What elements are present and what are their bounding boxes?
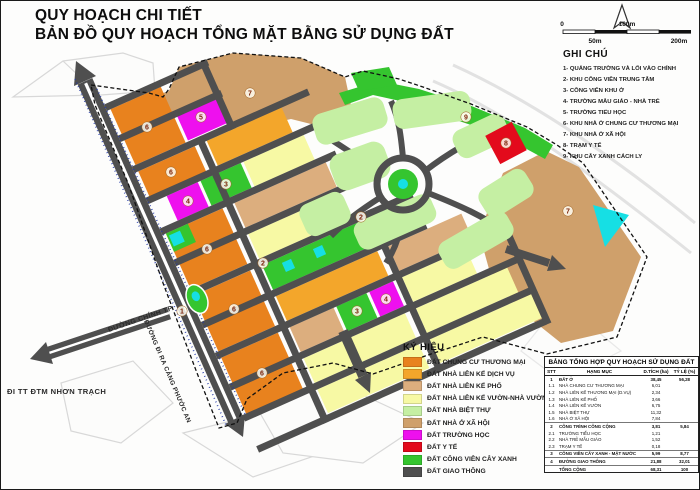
symbol-color-swatch	[403, 467, 422, 477]
symbol-label: ĐẤT GIAO THÔNG	[427, 468, 486, 475]
road-label: ĐI TT ĐTM NHƠN TRẠCH	[7, 387, 106, 396]
legend-note-item: 6- KHU NHÀ Ở CHUNG CƯ THƯƠNG MẠI	[563, 119, 699, 130]
symbol-label: ĐẤT NHÀ LIÊN KẾ DỊCH VỤ	[427, 371, 515, 378]
table-cell: 56,28	[671, 376, 698, 383]
symbol-label: ĐẤT NHÀ Ở XÃ HỘI	[427, 420, 490, 427]
table-cell	[671, 432, 698, 434]
symbol-legend-item: ĐẤT NHÀ LIÊN KẾ DỊCH VỤ	[403, 368, 543, 380]
table-row: 2.2NHÀ TRẺ MẪU GIÁO1,52	[545, 436, 698, 443]
table-row: 4ĐƯỜNG GIAO THÔNG21,8832,01	[545, 457, 698, 465]
symbol-legend-item: ĐẤT NHÀ Ở XÃ HỘI	[403, 417, 543, 429]
symbol-legend-item: ĐẤT NHÀ LIÊN KẾ VƯỜN-NHÀ VƯỜN	[403, 393, 543, 405]
block-number: 2	[261, 261, 265, 268]
block-number: 3	[355, 309, 359, 316]
landuse-summary-table: BẢNG TỔNG HỢP QUY HOẠCH SỬ DỤNG ĐẤT STTH…	[544, 356, 699, 473]
symbol-color-swatch	[403, 381, 422, 391]
symbol-color-swatch	[403, 406, 422, 416]
table-cell: NHÀ LIÊN KẾ PHỐ	[558, 396, 641, 403]
legend-note-item: 1- QUẢNG TRƯỜNG VÀ LỐI VÀO CHÍNH	[563, 64, 699, 75]
table-cell: 3	[545, 451, 558, 458]
table-cell: 2.2	[545, 436, 558, 443]
table-row: 2.1TRƯỜNG TIỂU HỌC1,21	[545, 430, 698, 437]
table-row: 1.2NHÀ LIÊN KẾ THƯƠNG MẠI (D.VỤ)2,34	[545, 389, 698, 396]
table-row: 3CÔNG VIÊN CÂY XANH - MẶT NƯỚC5,998,77	[545, 450, 698, 458]
symbol-color-swatch	[403, 442, 422, 452]
table-cell: 6,01	[641, 383, 671, 390]
table-cell: NHÀ LIÊN KẾ VƯỜN	[558, 402, 641, 409]
table-cell	[671, 418, 698, 420]
table-cell: 1.2	[545, 389, 558, 396]
table-row: 1.6NHÀ Ở XÃ HỘI7,84	[545, 416, 698, 423]
symbol-label: ĐẤT NHÀ LIÊN KẾ PHỐ	[427, 383, 502, 390]
table-cell: 5,99	[641, 451, 671, 458]
symbol-label: ĐẤT Y TẾ	[427, 444, 457, 451]
block-number: 6	[145, 125, 149, 132]
table-row: 1ĐẤT Ở38,4556,28	[545, 376, 698, 383]
legend-note-item: 4- TRƯỜNG MẪU GIÁO - NHÀ TRẺ	[563, 97, 699, 108]
table-cell: 1.4	[545, 402, 558, 409]
table-row: 2CÔNG TRÌNH CÔNG CỘNG3,815,84	[545, 422, 698, 430]
table-cell	[671, 411, 698, 413]
block-number: 6	[260, 371, 264, 378]
table-cell: 2.1	[545, 430, 558, 437]
symbols-list: ĐẤT CHUNG CƯ THƯƠNG MẠIĐẤT NHÀ LIÊN KẾ D…	[403, 356, 543, 478]
block-number: 2	[359, 215, 363, 222]
table-cell: 3,66	[641, 396, 671, 403]
table-cell: 100	[671, 466, 698, 473]
table-cell: 2,34	[641, 389, 671, 396]
table-cell: NHÀ CHUNG CƯ THƯƠNG MẠI	[558, 383, 641, 390]
legend-note-item: 8- TRẠM Y TẾ	[563, 141, 699, 152]
table-row: 2.3TRẠM Y TẾ0,18	[545, 443, 698, 450]
table-column-header: TỶ LỆ (%)	[671, 368, 698, 375]
symbol-color-swatch	[403, 357, 422, 367]
symbol-label: ĐẤT CÔNG VIÊN CÂY XANH	[427, 456, 517, 463]
symbols-heading: KÝ HIỆU	[403, 342, 543, 353]
table-header: STTHẠNG MỤCD.TÍCH (ha)TỶ LỆ (%)	[545, 368, 698, 376]
table-cell: 2.3	[545, 443, 558, 450]
table-column-header: STT	[545, 368, 558, 375]
table-cell	[671, 439, 698, 441]
table-cell: 38,45	[641, 376, 671, 383]
table-cell: 8,77	[671, 451, 698, 458]
block-number: 6	[232, 307, 236, 314]
table-cell: 1,52	[641, 436, 671, 443]
table-cell: 11,32	[641, 409, 671, 416]
table-cell: NHÀ Ở XÃ HỘI	[558, 416, 641, 423]
table-cell	[671, 392, 698, 394]
table-cell: 1,21	[641, 430, 671, 437]
table-cell: CÔNG VIÊN CÂY XANH - MẶT NƯỚC	[558, 451, 641, 458]
symbol-color-swatch	[403, 418, 422, 428]
table-cell: 32,01	[671, 458, 698, 465]
table-cell: ĐẤT Ở	[558, 376, 641, 383]
symbol-legend-item: ĐẤT GIAO THÔNG	[403, 466, 543, 478]
block-number: 6	[169, 170, 173, 177]
table-cell	[545, 468, 558, 470]
table-cell: 1.1	[545, 383, 558, 390]
table-cell: ĐƯỜNG GIAO THÔNG	[558, 458, 641, 465]
table-cell: 7,84	[641, 416, 671, 423]
scale-label: 0	[560, 21, 564, 28]
map-title-line2: BẢN ĐỒ QUY HOẠCH TỔNG MẶT BẰNG SỬ DỤNG Đ…	[35, 25, 454, 44]
table-cell	[671, 398, 698, 400]
symbol-label: ĐẤT TRƯỜNG HỌC	[427, 432, 490, 439]
symbol-color-swatch	[403, 369, 422, 379]
legend-note-item: 7- KHU NHÀ Ở XÃ HỘI	[563, 130, 699, 141]
map-title: QUY HOẠCH CHI TIẾT BẢN ĐỒ QUY HOẠCH TỔNG…	[35, 6, 454, 44]
table-row: 1.3NHÀ LIÊN KẾ PHỐ3,66	[545, 396, 698, 403]
block-number: 4	[186, 199, 190, 206]
block-number: 5	[199, 115, 203, 122]
symbol-label: ĐẤT NHÀ BIỆT THỰ	[427, 407, 491, 414]
symbol-legend-item: ĐẤT TRƯỜNG HỌC	[403, 429, 543, 441]
table-cell: 21,88	[641, 458, 671, 465]
scale-label: 100m	[619, 21, 636, 28]
table-row: TỔNG CỘNG68,31100	[545, 465, 698, 473]
legend-note-item: 5- TRƯỜNG TIỂU HỌC	[563, 108, 699, 119]
notes-heading: GHI CHÚ	[563, 49, 699, 60]
table-cell: 3,81	[641, 423, 671, 430]
symbol-label: ĐẤT CHUNG CƯ THƯƠNG MẠI	[427, 359, 526, 366]
table-cell: 1	[545, 376, 558, 383]
scale-bar	[563, 30, 691, 34]
table-cell: TRƯỜNG TIỂU HỌC	[558, 430, 641, 437]
table-body: 1ĐẤT Ở38,4556,281.1NHÀ CHUNG CƯ THƯƠNG M…	[545, 376, 698, 472]
legend-note-item: 3- CÔNG VIÊN KHU Ở	[563, 86, 699, 97]
roundabout-center	[398, 179, 408, 189]
legend-note-item: 9- KHU CÂY XANH CÁCH LY	[563, 152, 699, 163]
symbol-legend-item: ĐẤT Y TẾ	[403, 441, 543, 453]
table-row: 1.4NHÀ LIÊN KẾ VƯỜN6,75	[545, 402, 698, 409]
table-cell: NHÀ BIỆT THỰ	[558, 409, 641, 416]
scale-label: 50m	[588, 38, 601, 45]
symbol-color-swatch	[403, 455, 422, 465]
symbol-legend-item: ĐẤT CHUNG CƯ THƯƠNG MẠI	[403, 356, 543, 368]
table-column-header: HẠNG MỤC	[558, 368, 641, 375]
block-number: 8	[504, 141, 508, 148]
notes-panel: GHI CHÚ 1- QUẢNG TRƯỜNG VÀ LỐI VÀO CHÍNH…	[563, 49, 699, 163]
block-number: 9	[464, 115, 468, 122]
table-cell: 0,18	[641, 443, 671, 450]
legend-note-item: 2- KHU CÔNG VIÊN TRUNG TÂM	[563, 75, 699, 86]
table-cell: NHÀ LIÊN KẾ THƯƠNG MẠI (D.VỤ)	[558, 389, 641, 396]
table-cell: NHÀ TRẺ MẪU GIÁO	[558, 436, 641, 443]
table-cell: CÔNG TRÌNH CÔNG CỘNG	[558, 423, 641, 430]
block-number: 6	[205, 247, 209, 254]
block-number: 7	[566, 209, 570, 216]
symbol-legend-item: ĐẤT NHÀ BIỆT THỰ	[403, 405, 543, 417]
table-row: 1.1NHÀ CHUNG CƯ THƯƠNG MẠI6,01	[545, 383, 698, 390]
table-cell: 4	[545, 458, 558, 465]
block-number: 3	[224, 182, 228, 189]
table-cell	[671, 385, 698, 387]
symbol-legend-item: ĐẤT CÔNG VIÊN CÂY XANH	[403, 454, 543, 466]
table-row: 1.5NHÀ BIỆT THỰ11,32	[545, 409, 698, 416]
planning-map-page: ĐƯỜNG CHÍNH TPĐƯỜNG ĐI RA CẢNG PHƯỚC ANĐ…	[0, 0, 700, 490]
table-cell	[671, 405, 698, 407]
symbol-color-swatch	[403, 394, 422, 404]
block-number: 1	[180, 309, 184, 316]
table-cell: 1.6	[545, 416, 558, 423]
symbol-label: ĐẤT NHÀ LIÊN KẾ VƯỜN-NHÀ VƯỜN	[427, 395, 547, 402]
table-cell: 6,75	[641, 402, 671, 409]
table-cell: 1.3	[545, 396, 558, 403]
table-cell: 68,31	[641, 466, 671, 473]
symbol-color-swatch	[403, 430, 422, 440]
notes-list: 1- QUẢNG TRƯỜNG VÀ LỐI VÀO CHÍNH2- KHU C…	[563, 64, 699, 163]
table-cell	[671, 445, 698, 447]
symbol-legend-item: ĐẤT NHÀ LIÊN KẾ PHỐ	[403, 380, 543, 392]
block-number: 4	[384, 297, 388, 304]
table-title: BẢNG TỔNG HỢP QUY HOẠCH SỬ DỤNG ĐẤT	[545, 357, 698, 368]
table-cell: TRẠM Y TẾ	[558, 443, 641, 450]
table-cell: 2	[545, 423, 558, 430]
table-cell: 5,84	[671, 423, 698, 430]
table-cell: TỔNG CỘNG	[558, 466, 641, 473]
map-title-line1: QUY HOẠCH CHI TIẾT	[35, 6, 454, 25]
table-cell: 1.5	[545, 409, 558, 416]
symbols-panel: KÝ HIỆU ĐẤT CHUNG CƯ THƯƠNG MẠIĐẤT NHÀ L…	[403, 342, 543, 478]
block-number: 7	[248, 91, 252, 98]
scale-label: 200m	[671, 38, 688, 45]
table-column-header: D.TÍCH (ha)	[641, 368, 671, 375]
